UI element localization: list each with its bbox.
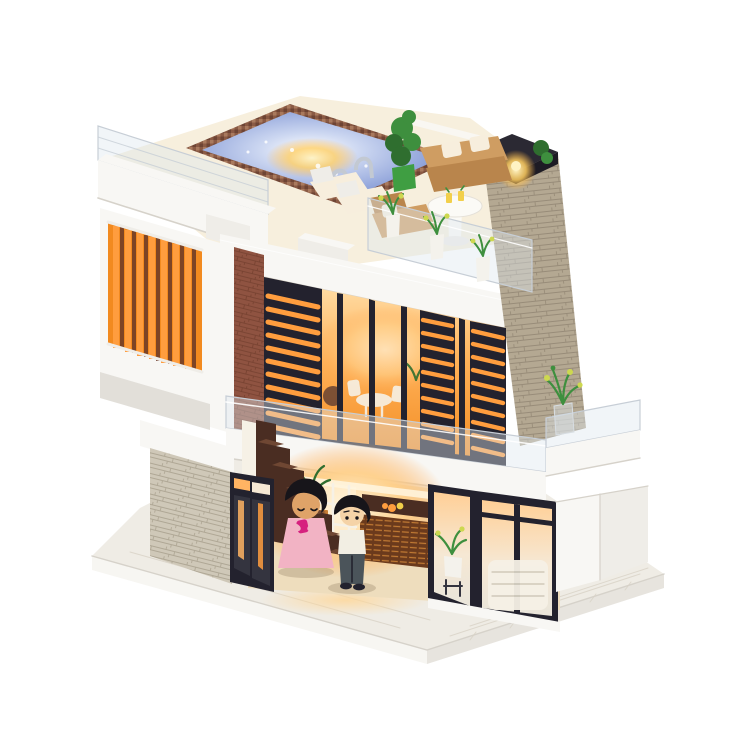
- dollhouse-product-photo: [0, 0, 750, 750]
- rattan-cabinet: [360, 494, 428, 568]
- corner-window: [428, 484, 560, 632]
- lemonade-glass: [446, 193, 452, 203]
- dollhouse-scene: [0, 0, 750, 750]
- wicker-sofa: [488, 560, 548, 610]
- fruit-bowl: [388, 504, 396, 512]
- lemonade-glass: [458, 191, 464, 201]
- glass-door: [230, 472, 274, 592]
- orange-slat-screen: [100, 208, 210, 430]
